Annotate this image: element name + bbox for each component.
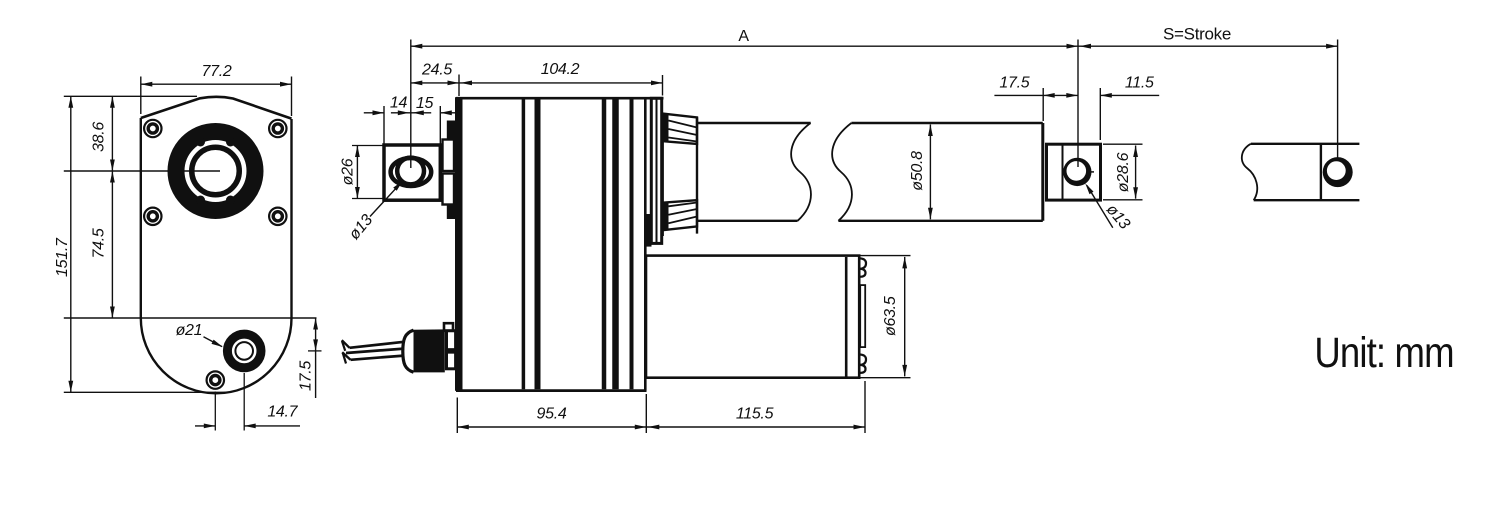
svg-text:17.5: 17.5 bbox=[298, 361, 315, 391]
svg-text:S=Stroke: S=Stroke bbox=[1163, 24, 1231, 43]
svg-text:17.5: 17.5 bbox=[999, 75, 1029, 92]
svg-text:Unit: mm: Unit: mm bbox=[1314, 329, 1453, 376]
svg-text:ø63.5: ø63.5 bbox=[882, 296, 899, 336]
svg-text:104.2: 104.2 bbox=[541, 61, 580, 78]
svg-text:14.7: 14.7 bbox=[267, 404, 298, 421]
svg-text:38.6: 38.6 bbox=[91, 122, 108, 152]
svg-text:ø13: ø13 bbox=[346, 212, 376, 244]
svg-text:151.7: 151.7 bbox=[54, 237, 71, 277]
svg-text:ø26: ø26 bbox=[340, 158, 357, 185]
svg-text:ø13: ø13 bbox=[1103, 201, 1133, 233]
svg-text:24.5: 24.5 bbox=[421, 62, 452, 79]
svg-text:77.2: 77.2 bbox=[202, 63, 232, 80]
svg-text:ø28.6: ø28.6 bbox=[1115, 152, 1132, 192]
svg-text:115.5: 115.5 bbox=[736, 406, 774, 423]
svg-text:11.5: 11.5 bbox=[1125, 75, 1154, 92]
svg-text:14: 14 bbox=[390, 95, 408, 112]
svg-text:74.5: 74.5 bbox=[91, 228, 108, 258]
svg-text:A: A bbox=[738, 28, 749, 45]
svg-text:ø50.8: ø50.8 bbox=[909, 151, 926, 191]
svg-text:ø21: ø21 bbox=[176, 322, 203, 339]
svg-text:95.4: 95.4 bbox=[537, 406, 567, 423]
svg-text:15: 15 bbox=[416, 95, 434, 112]
